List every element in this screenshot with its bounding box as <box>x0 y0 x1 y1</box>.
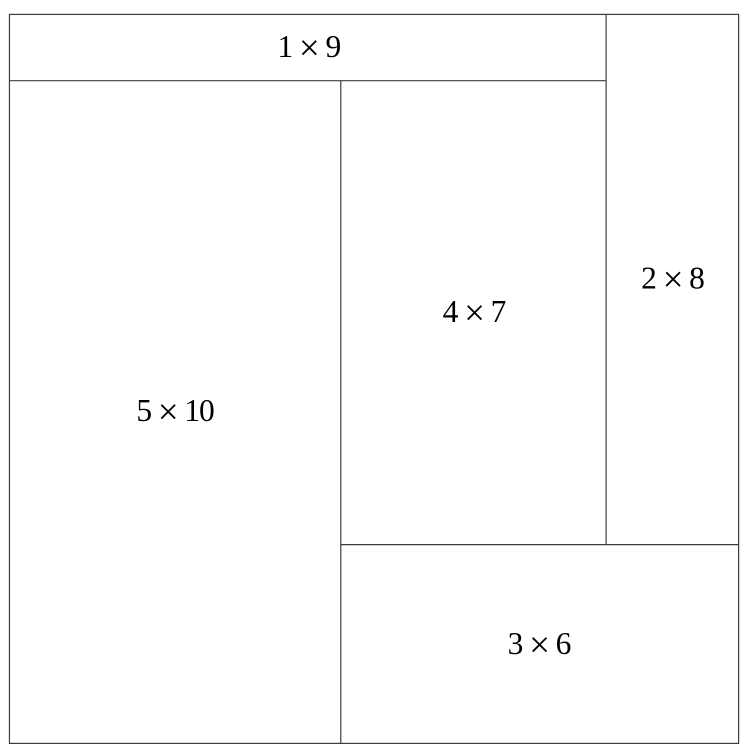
svg-text:4 × 7: 4 × 7 <box>443 293 506 334</box>
svg-text:1 × 9: 1 × 9 <box>277 28 340 69</box>
svg-text:2 × 8: 2 × 8 <box>641 259 704 300</box>
svg-text:5 × 10: 5 × 10 <box>136 392 214 433</box>
svg-text:3 × 6: 3 × 6 <box>508 625 571 666</box>
